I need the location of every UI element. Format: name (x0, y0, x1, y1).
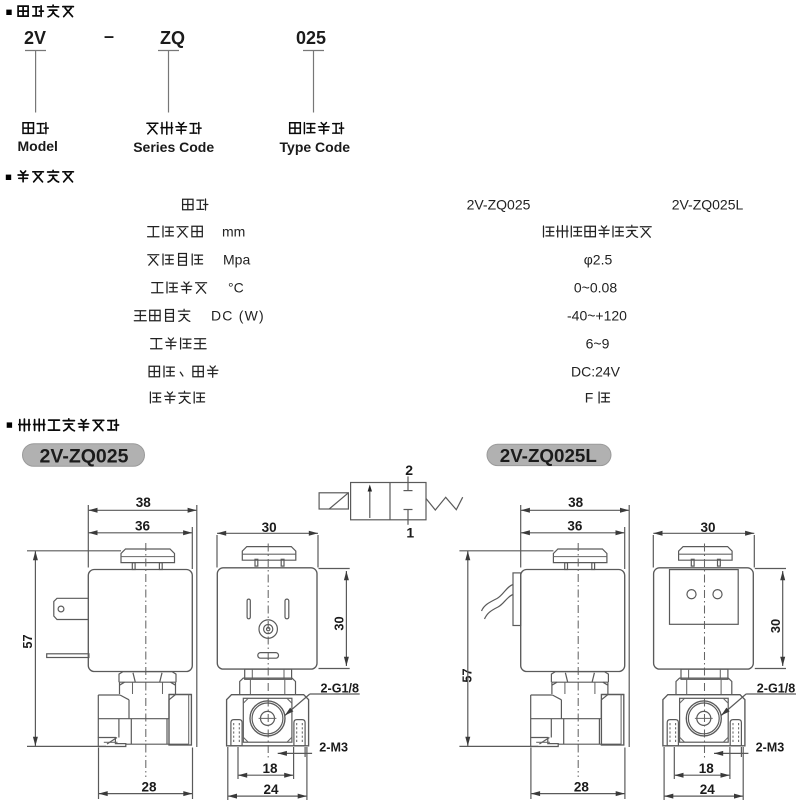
svg-text:2V-ZQ025: 2V-ZQ025 (467, 197, 531, 213)
svg-text:Model: Model (18, 138, 58, 154)
svg-text:ZQ: ZQ (160, 28, 185, 48)
svg-text:Series Code: Series Code (133, 139, 214, 155)
svg-text:36: 36 (135, 518, 151, 533)
svg-text:30: 30 (262, 520, 277, 535)
svg-text:57: 57 (460, 668, 475, 682)
svg-text:6~9: 6~9 (586, 336, 610, 352)
svg-text:Type Code: Type Code (280, 139, 351, 155)
svg-text:30: 30 (700, 520, 715, 535)
svg-text:2V: 2V (24, 28, 46, 48)
svg-text:38: 38 (568, 495, 584, 510)
svg-text:DC:24V: DC:24V (571, 364, 621, 380)
svg-text:18: 18 (262, 761, 278, 776)
svg-text:–: – (104, 26, 114, 46)
svg-text:38: 38 (136, 495, 152, 510)
svg-text:30: 30 (332, 616, 347, 630)
svg-text:2: 2 (405, 462, 413, 478)
svg-text:36: 36 (567, 518, 583, 533)
svg-text:28: 28 (574, 780, 590, 795)
svg-text:F: F (585, 390, 594, 406)
svg-text:-40~+120: -40~+120 (567, 308, 627, 324)
svg-text:2V-ZQ025L: 2V-ZQ025L (500, 445, 597, 466)
svg-text:025: 025 (296, 28, 326, 48)
svg-text:2-G1/8: 2-G1/8 (321, 681, 360, 695)
svg-text:φ2.5: φ2.5 (584, 252, 613, 268)
svg-text:0~0.08: 0~0.08 (574, 280, 617, 296)
svg-text:2-G1/8: 2-G1/8 (757, 681, 796, 695)
svg-text:°C: °C (228, 280, 244, 296)
svg-text:30: 30 (768, 619, 783, 633)
svg-text:28: 28 (141, 780, 157, 795)
svg-text:24: 24 (700, 782, 716, 797)
svg-text:24: 24 (263, 782, 279, 797)
svg-text:1: 1 (406, 525, 414, 541)
svg-text:2-M3: 2-M3 (319, 741, 348, 755)
svg-text:Mpa: Mpa (223, 252, 250, 268)
svg-text:DC (W): DC (W) (211, 308, 265, 324)
svg-text:mm: mm (222, 224, 245, 240)
svg-text:2V-ZQ025: 2V-ZQ025 (40, 446, 129, 468)
svg-text:2V-ZQ025L: 2V-ZQ025L (672, 197, 744, 213)
svg-text:57: 57 (20, 634, 35, 648)
svg-text:18: 18 (699, 761, 715, 776)
svg-text:2-M3: 2-M3 (756, 741, 785, 755)
